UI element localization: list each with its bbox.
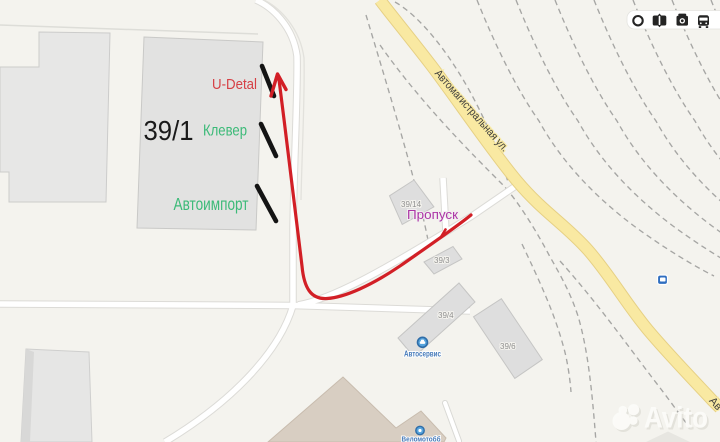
svg-text:39/4: 39/4 (438, 311, 454, 320)
svg-text:Веломотобб: Веломотобб (402, 435, 441, 442)
svg-text:U-Detal: U-Detal (212, 76, 257, 93)
svg-text:Avito: Avito (644, 402, 708, 435)
svg-text:Автосервис: Автосервис (404, 350, 441, 359)
svg-text:39/6: 39/6 (500, 342, 516, 351)
svg-text:39/1: 39/1 (144, 115, 194, 146)
svg-text:Клевер: Клевер (203, 123, 247, 140)
svg-text:39/3: 39/3 (434, 256, 450, 265)
svg-text:Автоимпорт: Автоимпорт (174, 194, 249, 214)
svg-text:Пропуск: Пропуск (407, 208, 459, 222)
